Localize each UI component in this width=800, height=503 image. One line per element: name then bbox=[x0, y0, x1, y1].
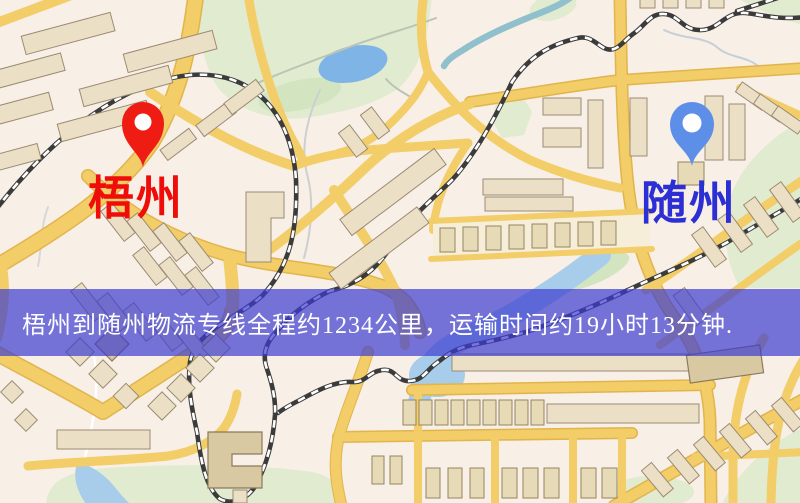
logistics-map-image: 梧州 随州 梧州到随州物流专线全程约1234公里，运输时间约19小时13分钟. bbox=[0, 0, 800, 503]
map-background bbox=[0, 0, 800, 503]
destination-label: 随州 bbox=[641, 181, 737, 227]
route-info-text: 梧州到随州物流专线全程约1234公里，运输时间约19小时13分钟. bbox=[0, 305, 733, 340]
origin-label: 梧州 bbox=[88, 176, 184, 222]
route-info-banner: 梧州到随州物流专线全程约1234公里，运输时间约19小时13分钟. bbox=[0, 289, 800, 356]
